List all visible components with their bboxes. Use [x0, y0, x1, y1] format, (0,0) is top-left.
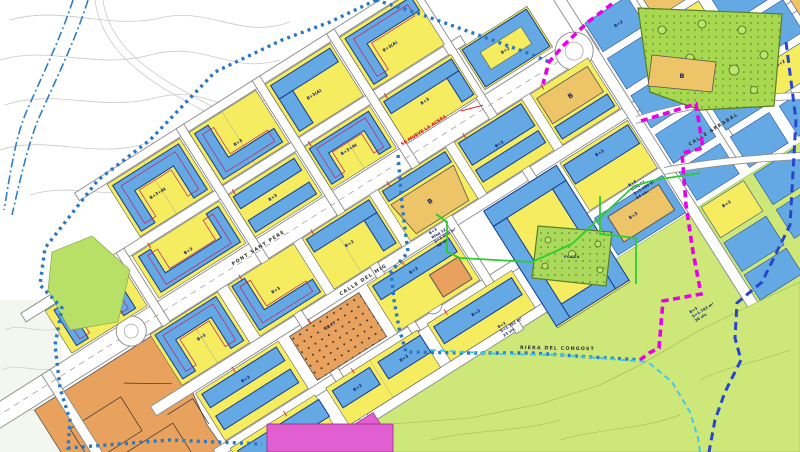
map-canvas: B+3+At B+3 B+3(A) B+3(A) B+3+At B+3 B+3 …	[0, 0, 800, 452]
block-label: B	[680, 72, 685, 80]
old-town-facility: B	[648, 55, 716, 92]
zoning-map: B+3+At B+3 B+3(A) B+3(A) B+3+At B+3 B+3 …	[0, 0, 800, 452]
special-pink-zone-bottom	[267, 424, 393, 452]
park-label: PLAZA	[564, 255, 580, 259]
